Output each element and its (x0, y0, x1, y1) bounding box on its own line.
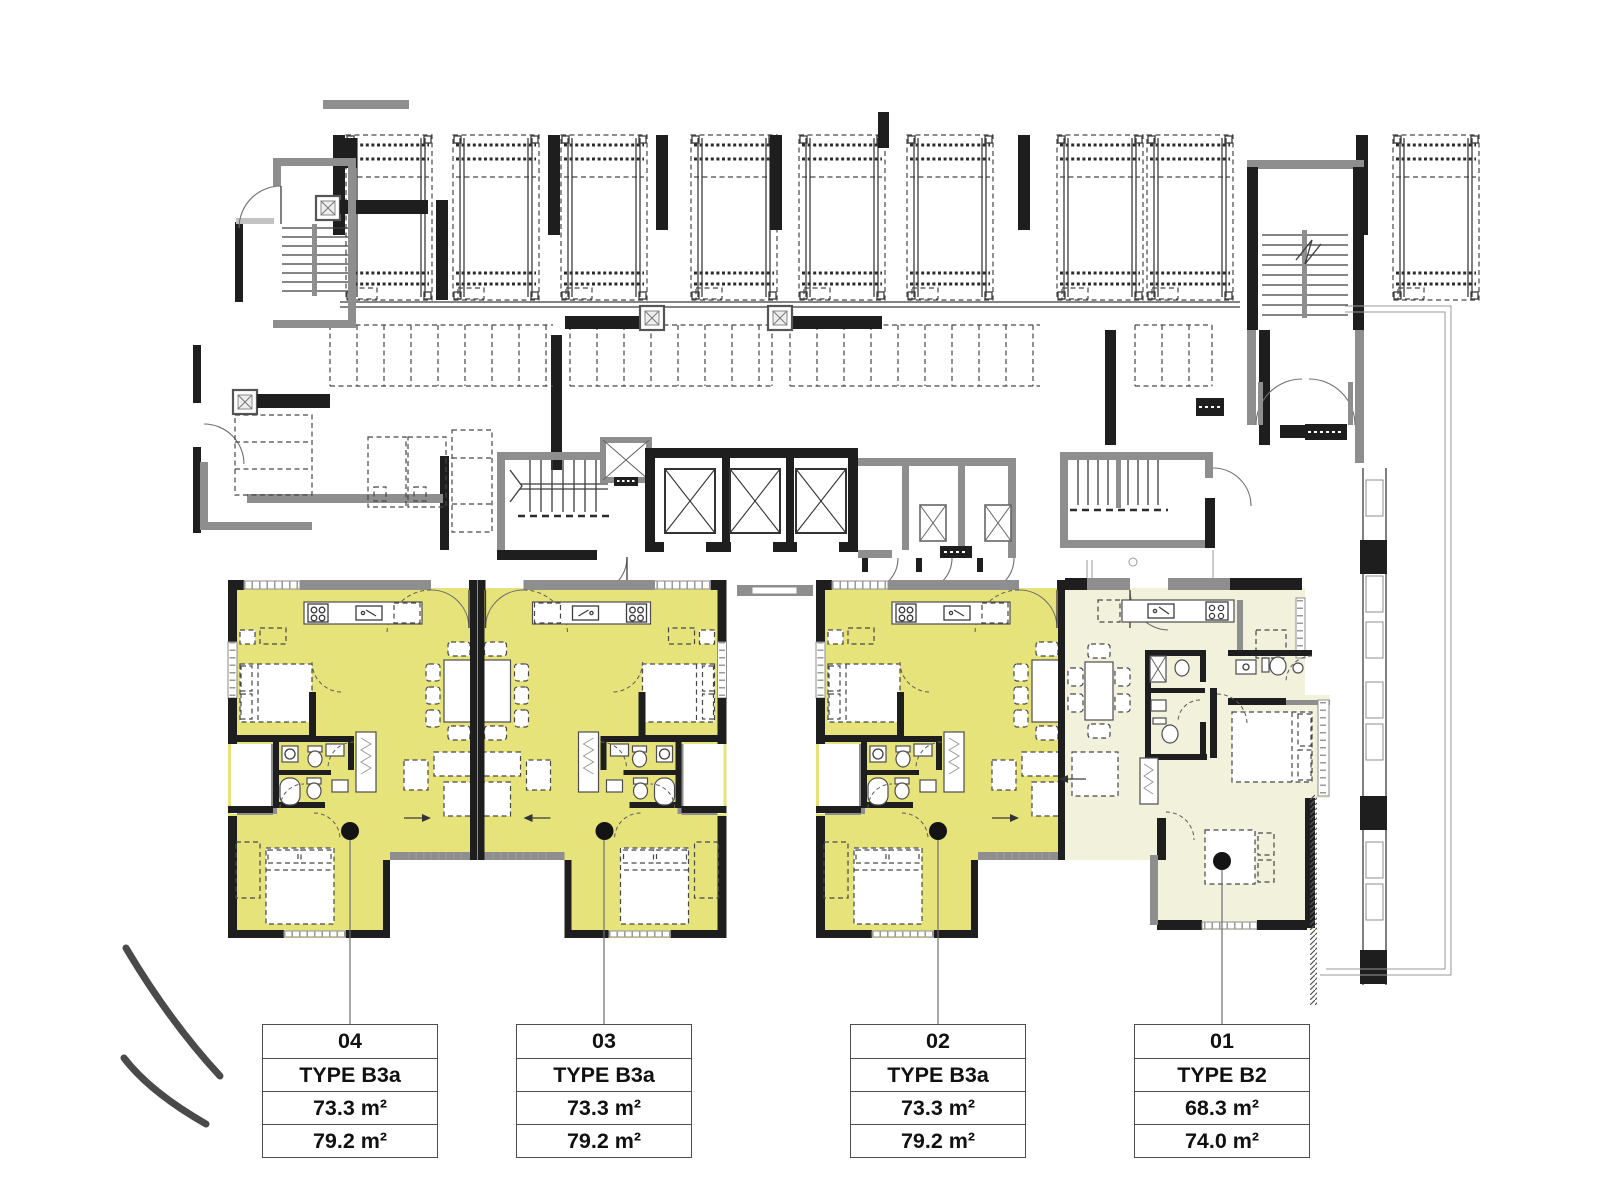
parking-stall (1393, 135, 1479, 300)
leader-lines (350, 840, 1222, 1024)
unit-03-floorplan (478, 580, 727, 938)
column-box-icon (640, 306, 664, 330)
unit-area-net: 73.3 m² (263, 1091, 437, 1124)
parking-stall (691, 135, 777, 300)
right-facade (1320, 306, 1451, 985)
unit-area-gross: 79.2 m² (851, 1124, 1025, 1157)
unit-04-floorplan (228, 580, 477, 938)
parking-stall (453, 135, 539, 300)
unit-area-net: 73.3 m² (851, 1091, 1025, 1124)
unit-01-floorplan (1059, 578, 1330, 1005)
floorplan-canvas: 04 TYPE B3a 73.3 m² 79.2 m² 03 TYPE B3a … (0, 0, 1600, 1194)
unit-number: 03 (517, 1025, 691, 1058)
parking-stall (907, 135, 993, 300)
unit-area-gross: 79.2 m² (263, 1124, 437, 1157)
unit-area-net: 68.3 m² (1135, 1091, 1309, 1124)
unit-card-01: 01 TYPE B2 68.3 m² 74.0 m² (1134, 1024, 1310, 1158)
unit-area-gross: 79.2 m² (517, 1124, 691, 1157)
small-parking-stalls (233, 196, 1212, 414)
apartment-units (228, 578, 1330, 1005)
unit-number: 02 (851, 1025, 1025, 1058)
shaft-icon (603, 440, 649, 486)
road-edge-lines (124, 948, 220, 1124)
parking-stall (799, 135, 885, 300)
parking-stall (346, 135, 432, 300)
unit-number: 01 (1135, 1025, 1309, 1058)
column-box-icon (233, 390, 257, 414)
column-box-icon (768, 306, 792, 330)
staircase-top-right (1196, 160, 1364, 463)
shaft-icon (985, 505, 1011, 541)
unit-card-03: 03 TYPE B3a 73.3 m² 79.2 m² (516, 1024, 692, 1158)
shaft-icon (920, 505, 946, 541)
boundary-fence (1310, 795, 1317, 1005)
elevator-bank (645, 448, 858, 552)
elevator-icon (665, 469, 715, 533)
floor-plan-drawing (0, 0, 1600, 1194)
unit-type: TYPE B3a (851, 1058, 1025, 1091)
column-box-icon (316, 196, 340, 220)
unit-number: 04 (263, 1025, 437, 1058)
utility-rooms (858, 458, 1016, 592)
unit-02-floorplan (816, 580, 1065, 938)
wall (323, 100, 409, 109)
parking-stall (1057, 135, 1143, 300)
parking-stall (561, 135, 647, 300)
unit-card-02: 02 TYPE B3a 73.3 m² 79.2 m² (850, 1024, 1026, 1158)
elevator-icon (796, 469, 846, 533)
unit-area-net: 73.3 m² (517, 1091, 691, 1124)
unit-type: TYPE B2 (1135, 1058, 1309, 1091)
unit-area-gross: 74.0 m² (1135, 1124, 1309, 1157)
unit-card-04: 04 TYPE B3a 73.3 m² 79.2 m² (262, 1024, 438, 1158)
parking-stall (1147, 135, 1233, 300)
gap-window (752, 587, 797, 594)
unit-type: TYPE B3a (263, 1058, 437, 1091)
elevator-icon (730, 469, 780, 533)
unit-type: TYPE B3a (517, 1058, 691, 1091)
